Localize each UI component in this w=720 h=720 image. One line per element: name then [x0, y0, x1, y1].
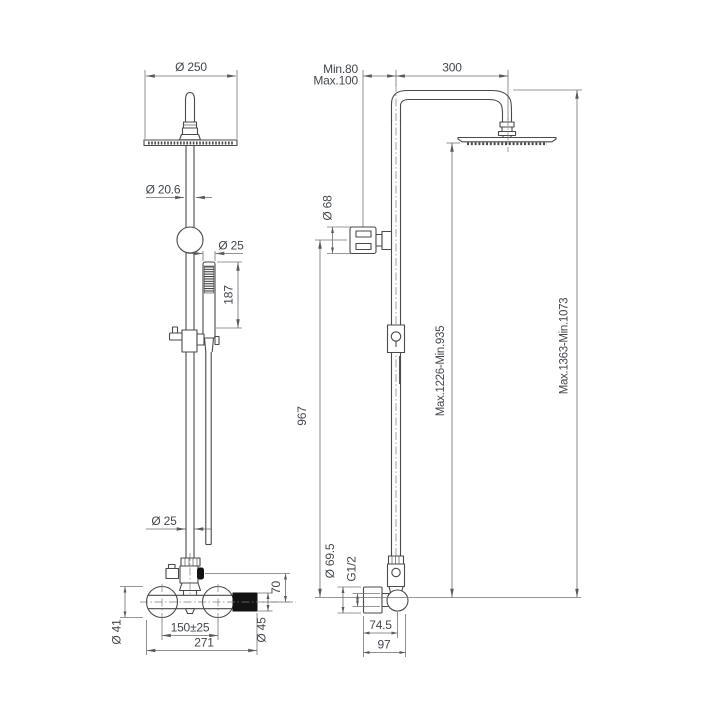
dim-label-head-diameter: Ø 250 [175, 60, 207, 74]
hand-shower-spray-face [204, 266, 214, 293]
dim-label-flange-diameter: Ø 69.5 [323, 543, 337, 578]
wall-flange [364, 587, 383, 613]
dim-label-diverter-offset: 70 [269, 581, 283, 594]
front-view: Ø 250 Ø 20.6 Ø 25 [110, 60, 297, 655]
dim-label-pipe-diameter: Ø 20.6 [146, 183, 181, 197]
technical-drawing: Ø 250 Ø 20.6 Ø 25 [0, 0, 720, 720]
dim-label-head-height-range: Max.1226-Min.935 [435, 326, 447, 416]
shower-arm-side [392, 91, 516, 139]
wall-union-side [364, 587, 409, 613]
dim-label-inlet-spacing: 150±25 [171, 621, 210, 635]
hand-shower-front [203, 262, 215, 545]
dim-label-total-height-range: Max.1363-Min.1073 [559, 298, 571, 395]
dim-label-thread: G1/2 [345, 556, 359, 582]
hand-shower-side [350, 227, 392, 254]
ball-joint-side [387, 590, 408, 611]
dim-label-wall-to-front: 97 [378, 638, 391, 652]
dim-label-handshower-width: Ø 25 [218, 239, 244, 253]
ball-joint-front [177, 227, 203, 253]
side-view: Min.80 Max.100 300 Ø 68 [295, 61, 582, 658]
dim-label-arm-reach: 300 [442, 61, 462, 75]
diverter-assembly-side [388, 556, 405, 593]
dim-label-wall-to-axis: 74.5 [369, 618, 392, 632]
drawing-canvas: Ø 250 Ø 20.6 Ø 25 [0, 0, 720, 720]
dim-label-column-height: 967 [295, 406, 309, 426]
slider-side [388, 325, 405, 353]
dim-label-body-width: 271 [194, 636, 214, 650]
shower-head-front [144, 140, 237, 146]
dim-label-handshower-head-diameter: Ø 68 [321, 195, 335, 221]
dim-label-handle-diameter: Ø 45 [255, 617, 269, 643]
dim-label-union-diameter: Ø 41 [110, 619, 124, 645]
diverter-knob [166, 569, 179, 579]
shower-arm-front [180, 93, 201, 140]
diverter-pin [198, 568, 204, 579]
dim-label-handshower-length: 187 [222, 285, 236, 305]
dim-label-column-diameter: Ø 25 [151, 514, 177, 528]
dim-label-wall-clearance-max: Max.100 [313, 74, 358, 88]
